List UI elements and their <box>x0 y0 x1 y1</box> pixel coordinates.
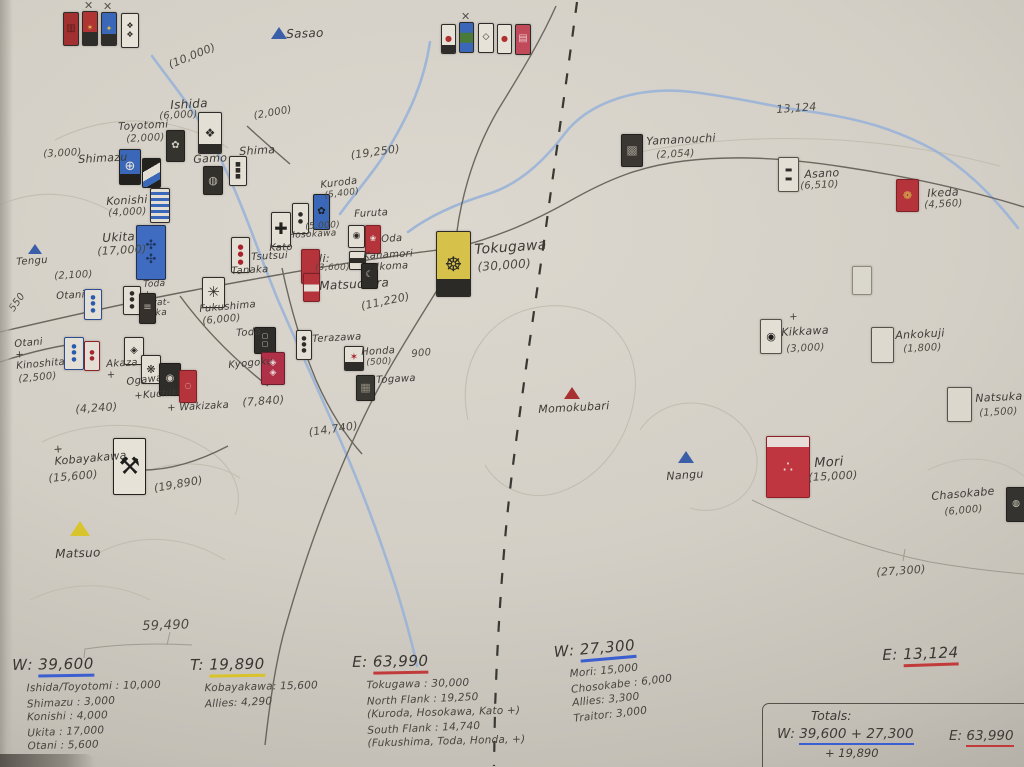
unit-banner-kinoshita-2: ● ● <box>84 341 100 371</box>
summary-prefix-east-reserve: E: <box>882 645 903 664</box>
unit-banner-toda-hiratsuka-glyph: ● ● ● <box>129 291 134 310</box>
summary-header-traitors: T: 19,890 <box>190 654 318 674</box>
unit-banner-furuta: ◉ <box>348 225 365 248</box>
map-label-7: (2,100) <box>54 270 93 283</box>
unit-banner-togawa-glyph: ▦ <box>360 382 370 394</box>
totals-east-line: E: 63,990 <box>949 728 1014 744</box>
photo-edge-left <box>0 0 13 767</box>
unit-label-otani-kinoshita: Otani + Kinoshita <box>14 336 66 373</box>
unit-value-kikkawa: (3,000) <box>786 343 825 356</box>
unit-banner-yamanouchi-glyph: ▩ <box>626 144 637 157</box>
matsuo-mountain-label: Matsuo <box>55 546 101 561</box>
unit-banner-togawa: ▦ <box>356 375 375 401</box>
unit-banner-mori: ∴ <box>766 436 810 498</box>
flags-top-center-flag-2-glyph: ◇ <box>483 33 490 42</box>
matsuo-mountain-icon <box>70 521 90 536</box>
unit-banner-gamo-2-glyph: ■ ■ ■ <box>235 162 241 181</box>
unit-banner-furuta-glyph: ◉ <box>353 232 361 241</box>
unit-value-ii: (3,600) <box>315 264 350 274</box>
unit-banner-ishida: ❖ <box>198 112 222 154</box>
unit-value-ikeda: (4,560) <box>924 199 963 212</box>
unit-label-ankokuji: Ankokuji <box>895 327 945 341</box>
unit-label-furuta: Furuta <box>354 208 389 221</box>
unit-value-ankokuji: (1,800) <box>903 343 942 356</box>
unit-value-shimazu: (3,000) <box>43 148 82 161</box>
summary-items-west-nangu: Mori: 15,000Chosokabe : 6,000Allies: 3,3… <box>555 651 676 726</box>
summary-total-west-main: 39,600 <box>38 655 94 678</box>
unit-banner-shimazu-2 <box>142 158 161 188</box>
nangu-mountain-label: Nangu <box>666 468 704 482</box>
unit-banner-mori-glyph: ∴ <box>783 459 793 476</box>
unit-banner-toyotomi-glyph: ✿ <box>171 141 179 152</box>
unit-label-oda: Oda <box>381 234 403 246</box>
sasao-mountain-icon <box>271 27 287 39</box>
unit-banner-toyotomi: ✿ <box>166 130 185 162</box>
unit-banner-terazawa: ● ● ● <box>296 330 312 360</box>
unit-banner-kuroda-glyph: ✿ <box>317 207 325 218</box>
unit-label-toda-2: Toda <box>236 328 261 340</box>
unit-banner-akaza-glyph: ◈ <box>130 346 138 357</box>
summary-total-east-main: 63,990 <box>373 652 429 675</box>
unit-banner-natsuka <box>947 387 972 422</box>
summary-prefix-west-main: W: <box>12 656 38 674</box>
unit-value-honda: (500) <box>366 358 392 369</box>
flags-top-center-flag-2: ◇ <box>478 23 494 53</box>
unit-banner-chasokabe: ◍ <box>1006 487 1024 522</box>
unit-banner-shimazu-band <box>120 174 140 184</box>
sasao-mountain-label: Sasao <box>286 27 324 41</box>
flags-top-left-flag-3: ❖ ❖ <box>121 13 139 48</box>
totals-west-line2: + 19,890 <box>825 746 879 760</box>
unit-banner-ikoma-glyph: ☾ <box>365 271 373 280</box>
unit-banner-kobayakawa-glyph: ⚒ <box>119 454 141 479</box>
flags-top-left-xmark-2: ✕ <box>103 0 112 13</box>
flags-top-left-flag-1: ✶ <box>82 11 98 46</box>
flags-top-center-flag-3: ● <box>497 24 512 54</box>
summary-total-east-reserve: 13,124 <box>903 643 959 667</box>
totals-title: Totals: <box>811 708 852 723</box>
unit-banner-wakizaka-glyph: ◌ <box>185 382 192 390</box>
unit-banner-wakizaka: ◌ <box>179 370 197 403</box>
unit-banner-terazawa-glyph: ● ● ● <box>301 336 306 355</box>
flags-top-center-flag-0-band <box>442 45 455 53</box>
unit-banner-mori-band <box>767 437 809 447</box>
unit-value-toyotomi: (2,000) <box>126 133 165 146</box>
flags-top-center-flag-0-glyph: ● <box>445 35 452 43</box>
unit-value-yamanouchi: (2,054) <box>656 149 695 162</box>
unit-label-gamo: Gamo <box>193 152 227 166</box>
unit-banner-gamo-2: ■ ■ ■ <box>229 156 247 186</box>
unit-label-tanaka: Tanaka <box>231 265 269 278</box>
unit-banner-kato-glyph: ✚ <box>274 221 287 238</box>
unit-label-kikkawa: Kikkawa <box>781 325 829 339</box>
totals-east-numbers: 63,990 <box>966 728 1013 747</box>
unit-banner-yamanouchi: ▩ <box>621 134 643 167</box>
unit-label-kikkawa-plus: + <box>789 313 798 324</box>
unit-label-shimazu: Shimazu <box>78 151 128 165</box>
unit-banner-ogawa-glyph: ❋ <box>146 364 155 376</box>
unit-banner-oda-glyph: ❀ <box>370 235 377 243</box>
unit-banner-otani-1: ● ● ● <box>84 289 102 320</box>
unit-banner-shimazu-glyph: ⊕ <box>125 160 136 174</box>
summary-column-traitors: T: 19,890Kobayakawa: 15,600Allies: 4,290 <box>190 654 318 710</box>
unit-banner-otani-kinoshita: ● ● ● <box>64 337 84 370</box>
unit-banner-tsutsui-glyph: ● ● ● <box>237 244 243 266</box>
unit-banner-gamo: ◍ <box>203 166 223 195</box>
flags-top-left-flag-1-glyph: ✶ <box>87 24 94 32</box>
flags-top-left-flag-0-glyph: ▥ <box>66 24 75 35</box>
unit-value-ukita: (17,000) <box>97 243 147 257</box>
unit-banner-gamo-glyph: ◍ <box>208 175 218 187</box>
unit-banner-fukushima-glyph: ✳ <box>207 285 220 301</box>
summary-prefix-traitors: T: <box>190 656 209 674</box>
unit-banner-ikeda-glyph: ❁ <box>903 190 912 202</box>
unit-banner-ankokuji <box>871 327 894 363</box>
flags-top-left-flag-2-glyph: ✦ <box>106 25 113 33</box>
flags-top-left-flag-3-glyph: ❖ ❖ <box>126 22 133 39</box>
unit-banner-ikeda: ❁ <box>896 179 919 212</box>
totals-west-numbers: 39,600 + 27,300 <box>799 726 913 745</box>
unit-banner-asano: ▬ ▬ <box>778 157 799 192</box>
unit-banner-hosokawa-glyph: ● ● <box>298 212 303 225</box>
flags-top-left-flag-1-band <box>83 32 97 45</box>
map-label-12: 900 <box>411 348 432 361</box>
unit-banner-toda-hiratsuka-2-glyph: ≡ <box>143 303 151 314</box>
unit-label-natsuka: Natsuka <box>975 391 1023 405</box>
unit-label-ikoma: Ikoma <box>376 261 409 273</box>
unit-banner-tokugawa-glyph: ☸ <box>445 254 463 275</box>
unit-banner-honda-glyph: ✶ <box>350 353 358 364</box>
unit-label-tsutsui: Tsutsui <box>251 251 288 264</box>
flags-top-left-flag-2-band <box>102 34 116 45</box>
photo-corner-dark <box>0 754 95 767</box>
nangu-mountain-icon <box>678 451 694 463</box>
summary-total-traitors: 19,890 <box>209 655 265 678</box>
unit-banner-otani-1-glyph: ● ● ● <box>90 295 95 314</box>
flags-top-center-flag-0: ● <box>441 24 456 54</box>
map-paper: ▥✶✕✦✕❖ ❖●✕◇●▤ SasaoTenguMatsuoMomokubari… <box>0 0 1024 767</box>
unit-banner-matsudaira-band <box>304 284 319 291</box>
tengu-mountain-label: Tengu <box>16 256 48 269</box>
flags-top-left-flag-2: ✦ <box>101 12 117 46</box>
unit-banner-otani-kinoshita-glyph: ● ● ● <box>71 344 76 363</box>
totals-west-line: W: 39,600 + 27,300 <box>777 726 914 742</box>
tengu-mountain-icon <box>28 244 42 254</box>
flags-top-left-xmark-1: ✕ <box>84 0 93 12</box>
totals-east-prefix: E: <box>949 728 962 744</box>
unit-banner-tokugawa-band <box>437 279 470 296</box>
momokubari-mountain-icon <box>564 387 580 399</box>
unit-banner-ishida-glyph: ❖ <box>205 127 216 140</box>
unit-banner-kikkawa: ◉ <box>760 319 782 354</box>
unit-banner-konishi <box>150 188 170 223</box>
unit-label-otani-1: Otani <box>56 291 85 303</box>
flags-top-center-flag-4: ▤ <box>515 24 531 55</box>
flags-top-center-flag-3-glyph: ● <box>501 35 508 43</box>
unit-value-mori: (15,000) <box>808 469 858 483</box>
unit-banner-matsudaira <box>303 273 320 302</box>
unit-banner-toda-hiratsuka-2: ≡ <box>139 293 156 324</box>
summary-column-west-nangu: W: 27,300Mori: 15,000Chosokabe : 6,000Al… <box>553 633 675 726</box>
summary-column-west-main: W: 39,600Ishida/Toyotomi : 10,000Shimazu… <box>12 653 162 753</box>
unit-value-natsuka: (1,500) <box>979 407 1018 420</box>
unit-banner-kikkawa-glyph: ◉ <box>766 331 776 343</box>
summary-header-east-reserve: E: 13,124 <box>882 643 959 664</box>
faint-pencil-lines <box>84 500 1024 658</box>
unit-banner-sketch-box <box>852 266 872 295</box>
summary-column-east-main: E: 63,990Tokugawa : 30,000North Flank : … <box>352 650 526 750</box>
unit-value-asano: (6,510) <box>800 180 839 193</box>
summary-prefix-west-nangu: W: <box>553 641 581 661</box>
flags-top-center-flag-1 <box>459 22 474 53</box>
flags-top-center-flag-4-glyph: ▤ <box>518 34 527 45</box>
unit-banner-toda-2-glyph: ▢ ▢ <box>262 333 269 348</box>
unit-label-togawa: Togawa <box>376 374 416 387</box>
map-label-13: 59,490 <box>142 618 190 634</box>
summary-items-west-main: Ishida/Toyotomi : 10,000Shimazu : 3,000K… <box>12 671 162 753</box>
unit-value-hosokawa: (5,000) <box>305 221 340 233</box>
unit-banner-kinoshita-2-glyph: ● ● <box>89 350 94 363</box>
unit-banner-chasokabe-glyph: ◍ <box>1012 500 1020 509</box>
totals-box: Totals: W: 39,600 + 27,300 + 19,890 E: 6… <box>762 703 1024 767</box>
totals-west-prefix: W: <box>777 726 795 742</box>
summary-items-east-main: Tokugawa : 30,000North Flank : 19,250(Ku… <box>352 668 525 750</box>
unit-banner-kuchiki-glyph: ◉ <box>166 374 175 385</box>
unit-banner-ukita-glyph: ✣ ✣ <box>146 239 157 266</box>
unit-banner-tokugawa: ☸ <box>436 231 471 297</box>
flags-top-left-flag-0: ▥ <box>63 12 79 46</box>
flags-top-center-xmark-1: ✕ <box>461 10 470 23</box>
unit-banner-asano-glyph: ▬ ▬ <box>785 166 793 183</box>
unit-banner-kyogoku-glyph: ◈ ◈ <box>270 359 277 378</box>
summary-item-west-main-4: Otani : 5,600 <box>27 736 162 754</box>
unit-value-konishi: (4,000) <box>108 207 147 220</box>
flags-top-center-flag-1-band <box>460 32 473 42</box>
summary-column-east-reserve: E: 13,124 <box>882 643 959 671</box>
summary-prefix-east-main: E: <box>352 653 373 671</box>
